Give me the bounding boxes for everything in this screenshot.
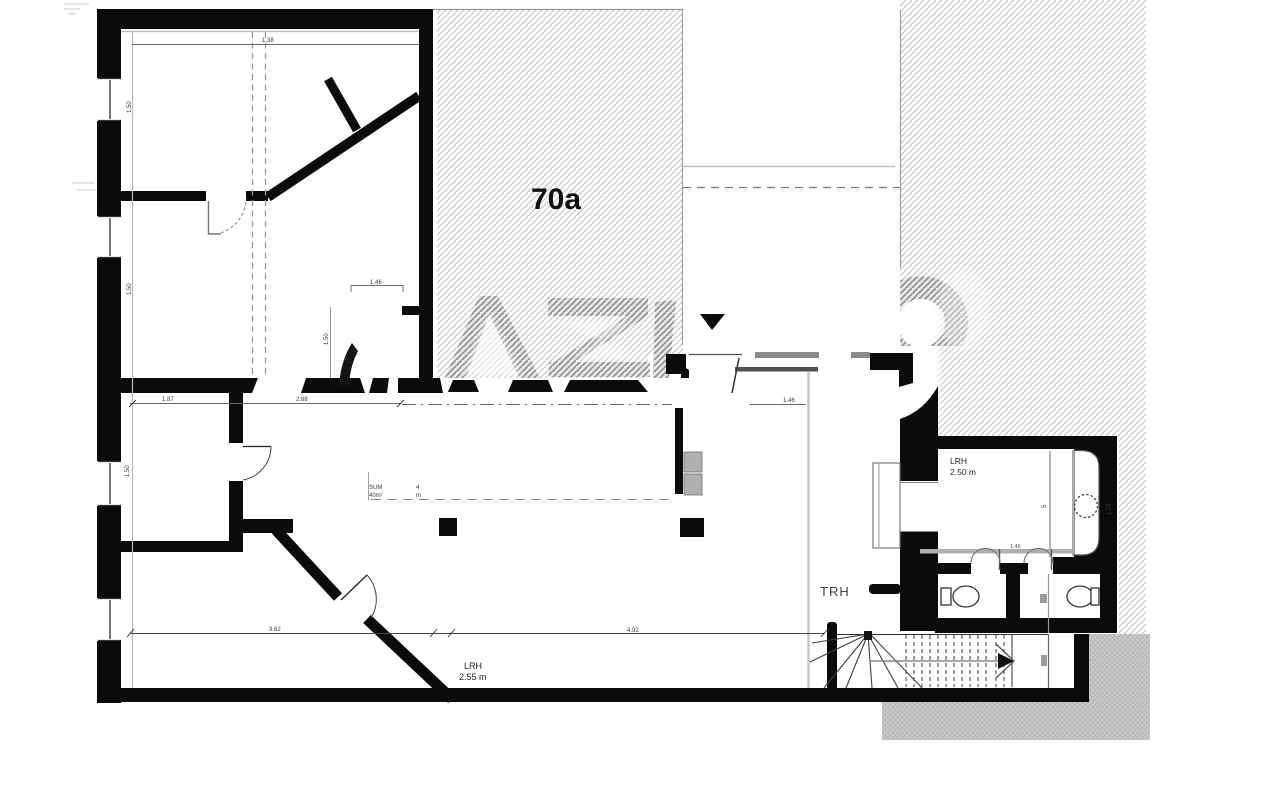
svg-text:70a: 70a [531,183,581,216]
svg-text:LRH: LRH [950,456,967,466]
svg-text:1.50: 1.50 [324,333,330,345]
svg-text:2.55 m: 2.55 m [459,672,487,682]
svg-text:1.46: 1.46 [1010,544,1021,550]
svg-text:4.92: 4.92 [627,628,639,634]
svg-text:TRH: TRH [820,584,850,599]
svg-text:1.50: 1.50 [127,101,133,113]
svg-text:2.88: 2.88 [296,397,308,403]
svg-text:1.75: 1.75 [1107,503,1113,515]
svg-text:2.50 m: 2.50 m [950,467,976,477]
svg-text:1.50: 1.50 [125,465,131,477]
svg-text:LRH: LRH [464,661,482,671]
svg-text:1.46: 1.46 [370,280,382,286]
svg-text:SUM: SUM [369,485,382,491]
svg-text:40m²: 40m² [369,493,383,499]
svg-text:m: m [416,493,421,499]
svg-text:1.38: 1.38 [262,38,274,44]
svg-text:1.87: 1.87 [162,397,174,403]
svg-text:1.46: 1.46 [783,398,795,404]
svg-text:3.62: 3.62 [269,627,281,633]
svg-text:1.50: 1.50 [127,283,133,295]
